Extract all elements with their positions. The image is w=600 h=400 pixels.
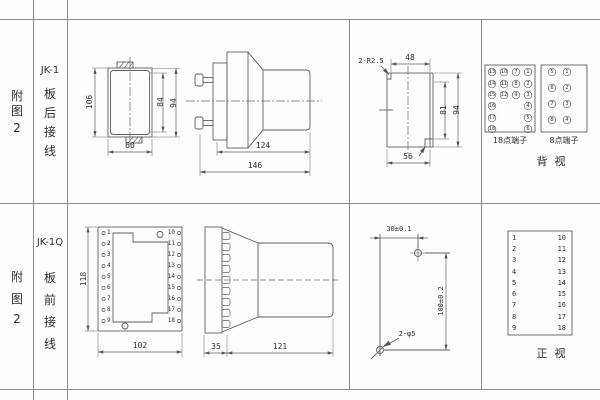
- terminal-number: 4: [522, 103, 534, 110]
- rear-view-caption: 背 视: [519, 153, 583, 169]
- terminal-number: 7: [510, 69, 522, 76]
- dim-81-label: 81: [439, 95, 449, 125]
- dim-35-label: 35: [200, 342, 232, 351]
- terminal-number: 3: [522, 92, 534, 99]
- dim-84-label: 84: [156, 87, 166, 117]
- terminal-number: 9: [512, 324, 524, 333]
- terminal-number: 6: [522, 126, 534, 133]
- terminal-number: 9: [510, 92, 522, 99]
- fig-label-row2-char3: 2: [10, 312, 24, 326]
- terminal-number: 1: [107, 229, 117, 237]
- terminal-number: 18: [549, 324, 566, 333]
- extension-lines: [85, 59, 462, 357]
- terminal-number: 3: [107, 251, 117, 259]
- fig-label-row1-char2: 图: [10, 102, 24, 119]
- wiring-label-row2-char4: 线: [43, 335, 57, 352]
- dim-2r25-label: 2-R2.5: [346, 57, 396, 65]
- terminal-number: 11: [549, 245, 566, 254]
- terminal-number: 4: [512, 268, 524, 277]
- terminal-number: 5: [512, 279, 524, 288]
- terminal-number: 7: [512, 301, 524, 310]
- table-grid: [0, 0, 600, 400]
- terminal-number: 10: [160, 229, 175, 237]
- dim-56-label: 56: [392, 152, 424, 161]
- terminal-number: 5: [522, 115, 534, 122]
- terminal-number: 11: [498, 81, 510, 88]
- dim-60-label: 60: [114, 141, 146, 150]
- model-label-jk1q: JK-1Q: [31, 237, 69, 248]
- terminal-number: 12: [498, 92, 510, 99]
- fig-label-row2-char1: 附: [10, 268, 24, 285]
- terminal-number: 16: [549, 301, 566, 310]
- dim-124-label: 124: [247, 141, 279, 150]
- terminal-number: 15: [549, 290, 566, 299]
- wiring-label-row1-char1: 板: [43, 85, 57, 102]
- terminal-number: 13: [160, 262, 175, 270]
- dim-48-label: 48: [394, 53, 426, 62]
- terminal-number: 13: [549, 268, 566, 277]
- drawing-canvas: [0, 0, 600, 400]
- dim-118-label: 118: [79, 264, 89, 294]
- terminal-number: 10: [498, 69, 510, 76]
- terminal-number: 17: [549, 313, 566, 322]
- wiring-label-row2-char3: 接: [43, 313, 57, 330]
- terminal-number: 14: [486, 81, 498, 88]
- terminal-number: 1: [522, 69, 534, 76]
- terminal-number: 4: [561, 117, 573, 124]
- terminal-number: 7: [546, 101, 558, 108]
- dim-94-cutout-label: 94: [452, 95, 462, 125]
- terminal-number: 15: [486, 92, 498, 99]
- dim-100-label: 100±0.2: [436, 274, 446, 328]
- terminal-number: 2: [107, 240, 117, 248]
- terminal-number: 3: [561, 101, 573, 108]
- fig-label-row1-char3: 2: [10, 121, 24, 135]
- fig-label-row2-char2: 图: [10, 290, 24, 307]
- terminal-number: 11: [160, 240, 175, 248]
- terminal-number: 17: [486, 115, 498, 122]
- terminal-number: 6: [546, 85, 558, 92]
- terminal-number: 2: [512, 245, 524, 254]
- terminal-number: 4: [107, 262, 117, 270]
- terminal-number: 3: [512, 256, 524, 265]
- terminal-number: 9: [107, 317, 117, 325]
- terminal-number: 18: [160, 317, 175, 325]
- terminal-number: 10: [549, 234, 566, 243]
- front-view-caption: 正 视: [519, 345, 583, 361]
- dim-106-label: 106: [85, 87, 95, 117]
- terminal-number: 5: [107, 273, 117, 281]
- terminal-number: 7: [107, 295, 117, 303]
- terminal-number: 6: [107, 284, 117, 292]
- dim-30-label: 30±0.1: [369, 225, 429, 233]
- terminal-number: 18: [486, 126, 498, 133]
- wiring-label-row1-char3: 接: [43, 123, 57, 140]
- terminal-number: 15: [160, 284, 175, 292]
- dim-121-label: 121: [264, 342, 296, 351]
- terminal-number: 17: [160, 306, 175, 314]
- terminal-number: 1: [561, 69, 573, 76]
- terminal-number: 8: [512, 313, 524, 322]
- terminal-number: 14: [160, 273, 175, 281]
- terminal-number: 5: [546, 69, 558, 76]
- dim-146-label: 146: [239, 161, 271, 170]
- terminal-number: 12: [160, 251, 175, 259]
- terminal-number: 12: [549, 256, 566, 265]
- terminal-number: 8: [107, 306, 117, 314]
- drawing-sheet: 附 图 2 JK-1 板 后 接 线 附 图 2 JK-1Q 板 前 接 线 1…: [0, 0, 600, 400]
- dimension-lines: [88, 64, 458, 353]
- dim-102-label: 102: [124, 341, 156, 350]
- terminal-number: 2: [561, 85, 573, 92]
- dim-2phi5-label: 2-φ5: [382, 330, 432, 338]
- terminal-number: 16: [160, 295, 175, 303]
- terminal-number: 2: [522, 81, 534, 88]
- terminal-number: 8: [546, 117, 558, 124]
- model-label-jk1: JK-1: [33, 65, 67, 76]
- wiring-label-row1-char2: 后: [43, 104, 57, 121]
- terminal-number: 8: [510, 81, 522, 88]
- terminal-number: 1: [512, 234, 524, 243]
- wiring-label-row2-char1: 板: [43, 269, 57, 286]
- terminal-number: 16: [486, 103, 498, 110]
- terminal8-caption: 8点端子: [532, 135, 596, 146]
- terminal-number: 6: [512, 290, 524, 299]
- dim-94-label: 94: [169, 88, 179, 118]
- terminal-number: 14: [549, 279, 566, 288]
- terminal-number: 13: [486, 69, 498, 76]
- wiring-label-row1-char4: 线: [43, 142, 57, 159]
- wiring-label-row2-char2: 前: [43, 291, 57, 308]
